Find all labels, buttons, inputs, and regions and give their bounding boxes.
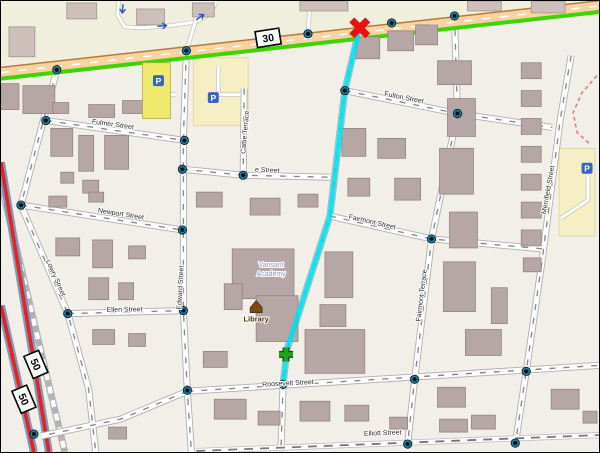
parking-lot bbox=[193, 58, 248, 126]
building bbox=[342, 128, 366, 156]
building bbox=[300, 1, 348, 11]
street-name-label: Elliott Street bbox=[364, 429, 402, 437]
building bbox=[471, 415, 495, 429]
building bbox=[521, 146, 541, 162]
building bbox=[444, 262, 476, 312]
building bbox=[378, 138, 406, 158]
intersection-node-dot bbox=[242, 174, 245, 177]
intersection-node-dot bbox=[406, 443, 409, 446]
intersection-node-dot bbox=[32, 433, 35, 436]
building bbox=[300, 401, 330, 421]
building bbox=[390, 417, 408, 429]
academy-building bbox=[224, 284, 242, 310]
building bbox=[416, 25, 438, 45]
building bbox=[395, 178, 421, 200]
building bbox=[521, 202, 541, 218]
intersection-node-dot bbox=[430, 238, 433, 241]
building bbox=[214, 399, 246, 419]
building bbox=[53, 103, 69, 114]
building bbox=[93, 330, 115, 345]
intersection-node-dot bbox=[44, 119, 47, 122]
building bbox=[89, 192, 104, 202]
building bbox=[49, 196, 67, 207]
intersection-node-dot bbox=[453, 15, 456, 18]
intersection-node-dot bbox=[525, 370, 528, 373]
academy-label-line1: Vansant bbox=[259, 262, 284, 269]
building bbox=[105, 135, 129, 169]
route-shield-number: 30 bbox=[262, 33, 275, 46]
intersection-node-dot bbox=[181, 168, 184, 171]
intersection-node-dot bbox=[186, 389, 189, 392]
building bbox=[119, 283, 134, 300]
map-svg: PPPLibraryVansantAcademyFulmer StreetNew… bbox=[1, 1, 599, 452]
building bbox=[129, 334, 146, 347]
building bbox=[56, 238, 80, 256]
route-shield: 30 bbox=[255, 28, 281, 47]
building bbox=[61, 172, 74, 183]
building bbox=[196, 192, 222, 207]
building bbox=[521, 174, 541, 190]
building bbox=[438, 387, 466, 407]
intersection-node-dot bbox=[456, 112, 459, 115]
map-canvas[interactable]: PPPLibraryVansantAcademyFulmer StreetNew… bbox=[0, 0, 600, 453]
building bbox=[345, 405, 369, 421]
building bbox=[123, 101, 143, 114]
academy-label-line2: Academy bbox=[257, 271, 287, 278]
building bbox=[523, 258, 541, 272]
building bbox=[491, 288, 507, 324]
building bbox=[521, 230, 541, 246]
intersection-node-dot bbox=[307, 32, 310, 35]
building bbox=[23, 86, 55, 114]
intersection-node-dot bbox=[514, 442, 517, 445]
building bbox=[109, 427, 127, 439]
building bbox=[467, 1, 501, 11]
building bbox=[440, 419, 468, 432]
building bbox=[79, 135, 94, 171]
intersection-node-dot bbox=[55, 68, 58, 71]
building bbox=[203, 351, 227, 367]
intersection-node-dot bbox=[66, 312, 69, 315]
building bbox=[1, 84, 19, 110]
building bbox=[521, 63, 541, 79]
building bbox=[448, 99, 476, 137]
building bbox=[348, 178, 370, 196]
yellow-building bbox=[143, 63, 171, 119]
building bbox=[258, 411, 280, 425]
building bbox=[450, 212, 478, 248]
building bbox=[137, 9, 165, 25]
intersection-node-dot bbox=[413, 378, 416, 381]
building bbox=[129, 246, 146, 259]
library-label: Library bbox=[243, 315, 269, 324]
intersection-node-dot bbox=[343, 89, 346, 92]
intersection-node-dot bbox=[183, 139, 186, 142]
building bbox=[250, 198, 280, 215]
building bbox=[325, 252, 353, 298]
intersection-node-dot bbox=[390, 22, 393, 25]
building bbox=[9, 27, 35, 57]
intersection-node-dot bbox=[181, 229, 184, 232]
street-name-label: e Street bbox=[255, 167, 280, 175]
building bbox=[388, 31, 414, 51]
building bbox=[83, 180, 99, 193]
building bbox=[305, 330, 365, 374]
building bbox=[51, 128, 73, 156]
building bbox=[551, 389, 579, 409]
building bbox=[67, 3, 97, 19]
parking-icon-letter: P bbox=[156, 76, 162, 86]
building bbox=[356, 37, 380, 59]
intersection-node-dot bbox=[185, 49, 188, 52]
building bbox=[89, 278, 109, 300]
building bbox=[521, 118, 541, 134]
building bbox=[583, 411, 597, 423]
building bbox=[298, 194, 318, 207]
building bbox=[93, 240, 113, 268]
building bbox=[465, 330, 501, 356]
building bbox=[320, 305, 346, 327]
street-name-label: Ellen Street bbox=[106, 306, 142, 314]
building bbox=[440, 148, 474, 194]
intersection-node-dot bbox=[20, 204, 23, 207]
building bbox=[89, 105, 115, 118]
parking-icon-letter: P bbox=[210, 93, 216, 103]
building bbox=[438, 61, 472, 85]
building bbox=[531, 1, 565, 13]
parking-icon-letter: P bbox=[584, 163, 590, 173]
building bbox=[521, 91, 541, 107]
